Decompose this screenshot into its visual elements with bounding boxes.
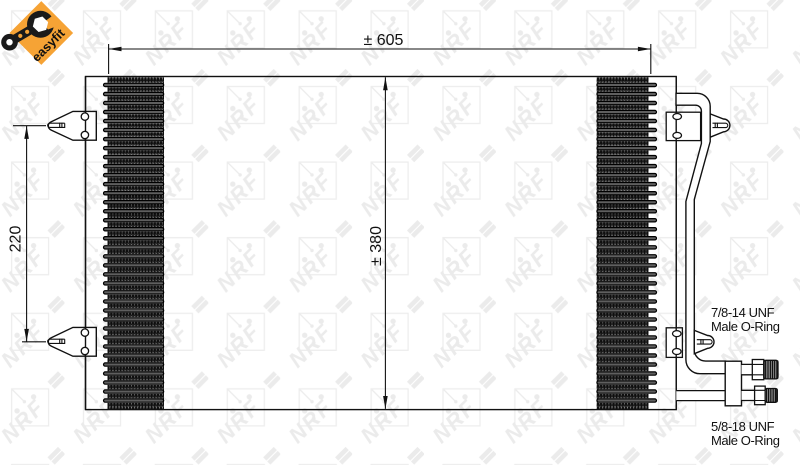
- svg-text:7/8-14 UNF: 7/8-14 UNF: [711, 305, 775, 320]
- svg-text:Male O-Ring: Male O-Ring: [711, 433, 780, 448]
- svg-text:± 380: ± 380: [368, 226, 385, 266]
- svg-text:± 605: ± 605: [364, 32, 404, 49]
- svg-text:Male O-Ring: Male O-Ring: [711, 319, 780, 334]
- svg-text:220: 220: [8, 226, 25, 253]
- svg-text:5/8-18 UNF: 5/8-18 UNF: [711, 419, 775, 434]
